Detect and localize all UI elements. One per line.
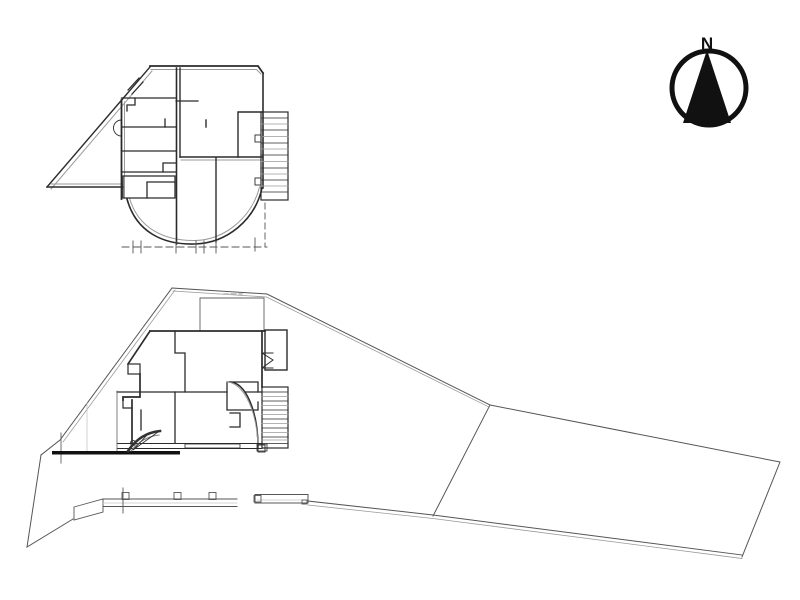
wall-bump [128,364,140,374]
drawing-canvas: N [0,0,800,600]
site-boundary [27,288,490,547]
drawing-sheet: N [0,0,800,600]
north-arrow-icon: N [672,34,746,125]
roof-outline [200,298,264,331]
upper-plan-triangle-wing [47,67,152,189]
fence-post [209,493,216,500]
stair-door-jamb [255,178,261,185]
site-plan-staircase [258,387,288,452]
retaining-wall [52,451,180,455]
planter [185,444,240,448]
upper-plan-outer-walls [114,66,264,244]
upper-plan-main-rooms [176,68,262,244]
stair-door-jamb [255,135,261,142]
street-fence [74,488,308,520]
land-parcel [308,405,780,559]
upper-floor-plan [47,66,288,253]
fence-end-ramp [74,499,103,520]
fence-segment [255,495,308,504]
break-mark [128,78,143,94]
upper-plan-left-rooms [122,98,177,198]
north-label: N [701,34,713,53]
double-door-symbol [262,353,273,368]
site-plan [27,288,780,559]
door-swing-arc [114,120,122,136]
fence-post [174,493,181,500]
north-arrow-needle [683,50,731,123]
ground-floor-building [52,298,288,463]
